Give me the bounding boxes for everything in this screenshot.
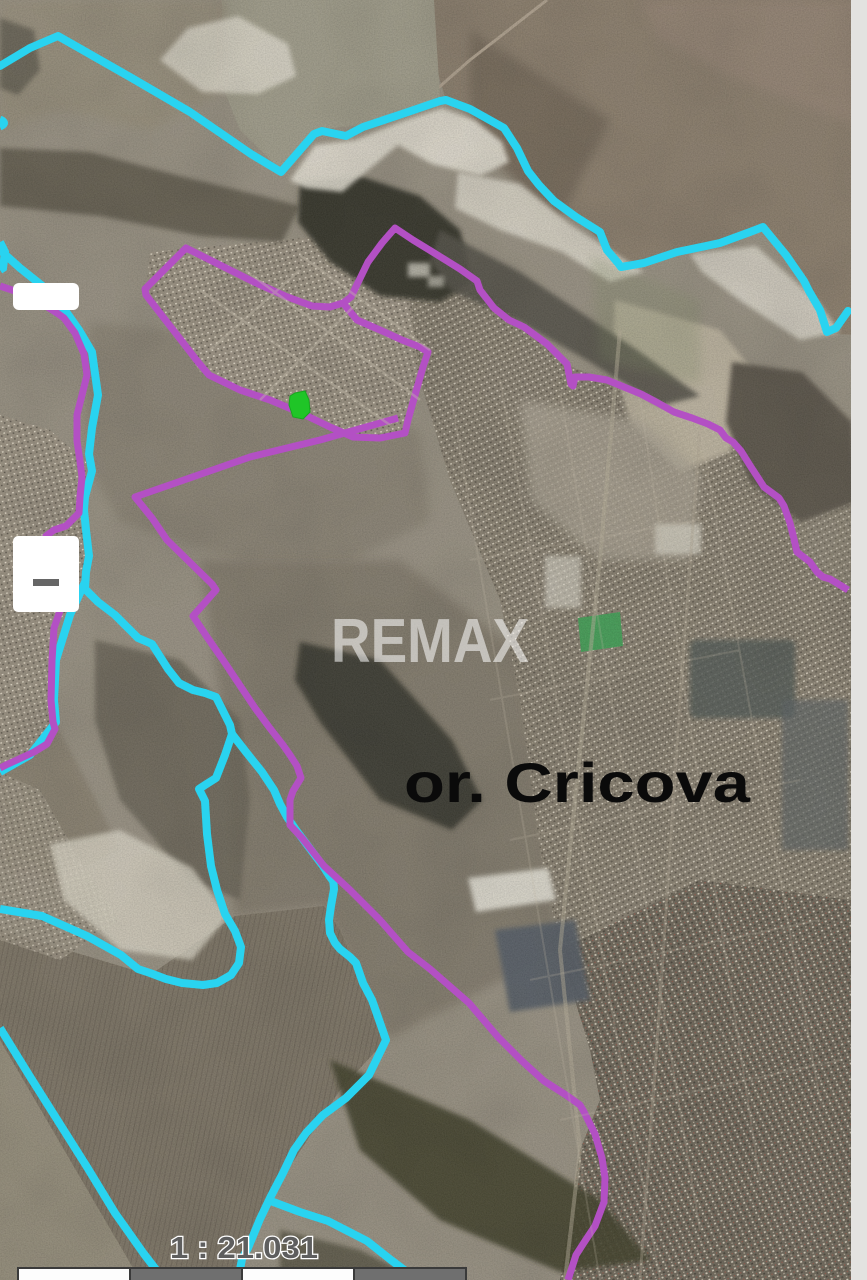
svg-text:or. Cricova: or. Cricova xyxy=(404,751,751,814)
svg-text:1 : 21.031: 1 : 21.031 xyxy=(170,1230,318,1265)
svg-text:REMAX: REMAX xyxy=(331,607,529,676)
